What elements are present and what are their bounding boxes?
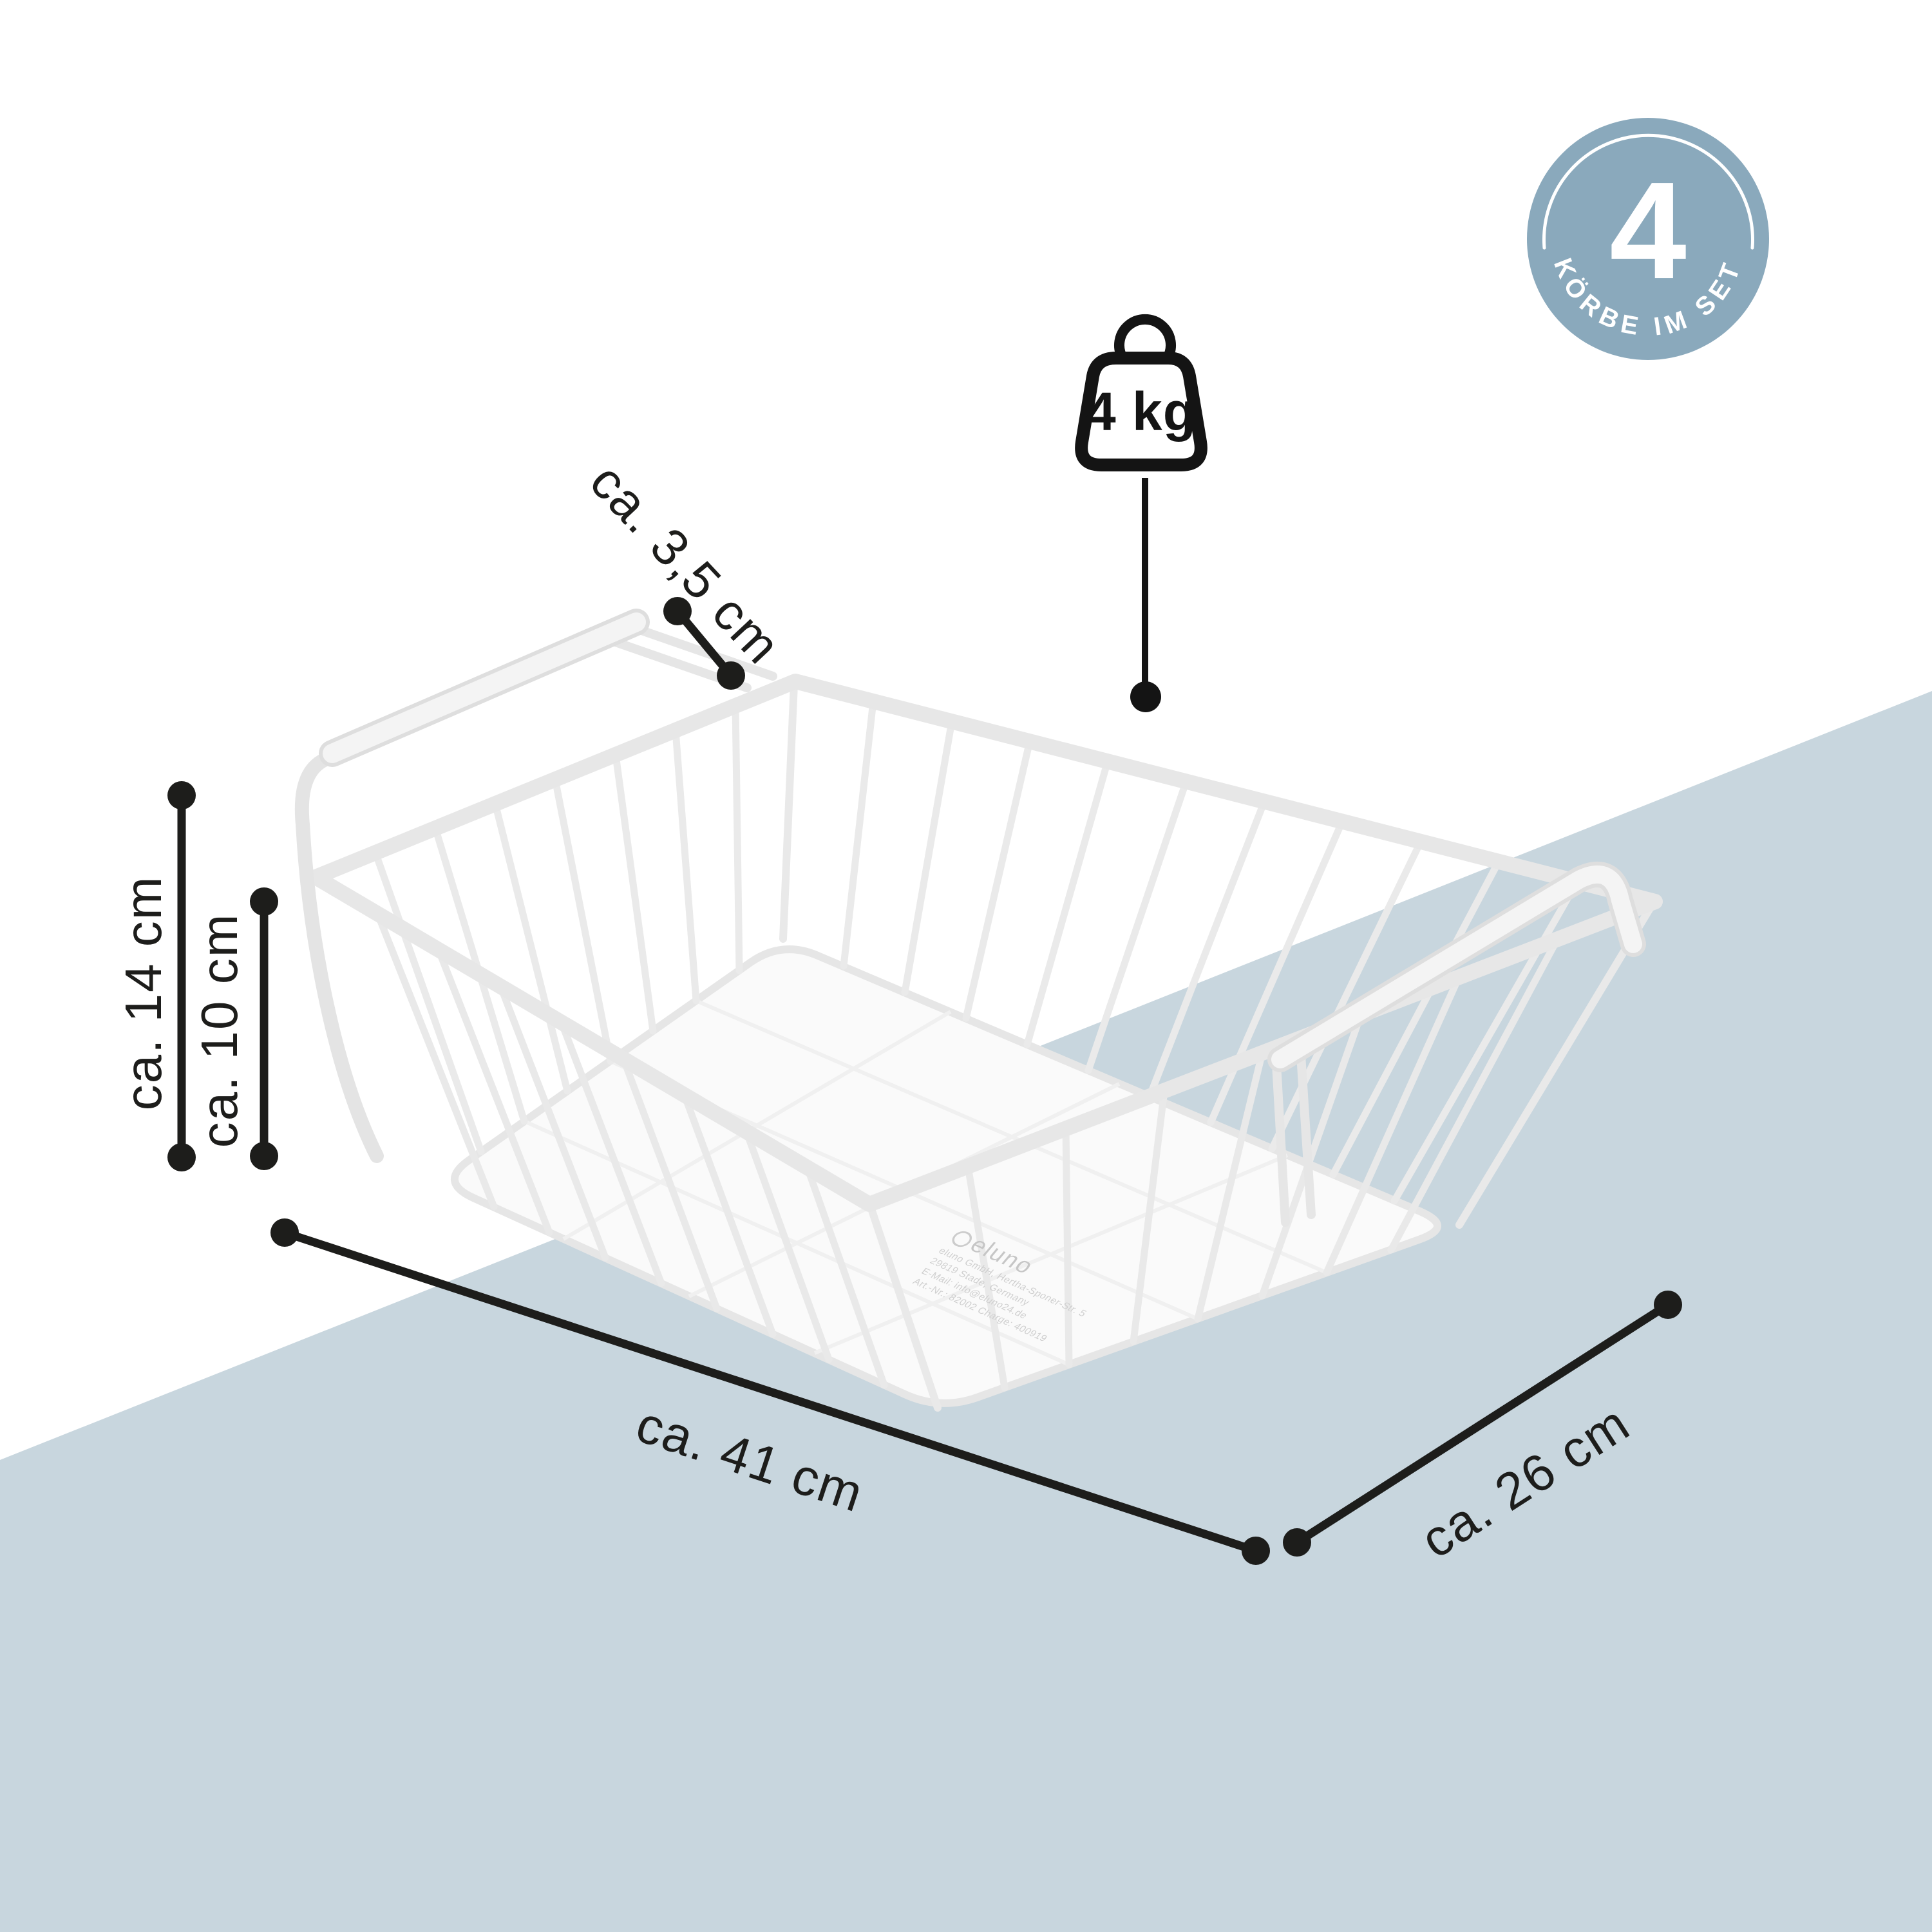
weight-capacity-icon: 4 kg (1081, 319, 1201, 712)
badge-number: 4 (1609, 153, 1687, 308)
weight-capacity-label: 4 kg (1086, 381, 1197, 442)
illustration-canvas: eluno eluno GmbH, Hertha-Sponer-Str. 5 2… (0, 0, 1932, 1932)
left-hook-bar (332, 622, 636, 753)
dimension-label-total-height: ca. 14 cm (115, 876, 172, 1111)
product-dimension-illustration: eluno eluno GmbH, Hertha-Sponer-Str. 5 2… (0, 0, 1932, 1932)
left-hook-outer-post (302, 759, 377, 1156)
set-count-badge: 4 KÖRBE IM SET (1527, 118, 1769, 360)
weight-pointer-dot (1130, 681, 1161, 712)
dimension-label-basket-height: ca. 10 cm (191, 913, 248, 1148)
dimension-line-basket-height (250, 887, 278, 1170)
